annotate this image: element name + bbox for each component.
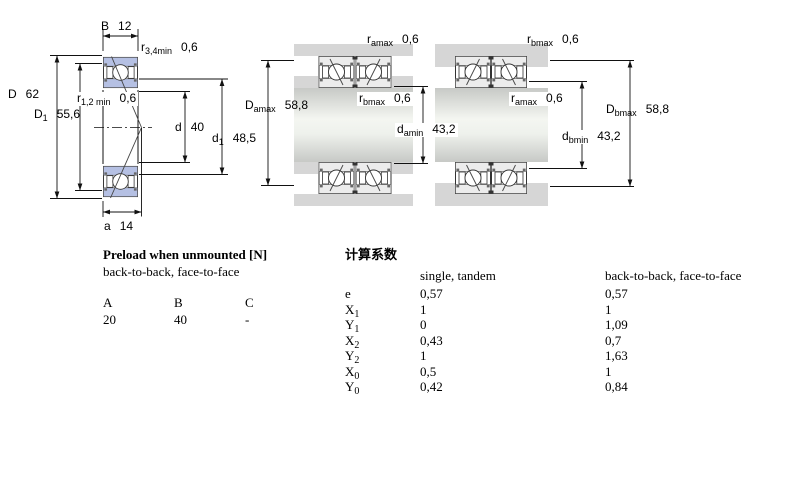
- factor-paired-value: 1,63: [605, 348, 628, 363]
- factors-header-row: single, tandemback-to-back, face-to-face: [345, 268, 785, 283]
- dim-label-B: B12: [101, 20, 131, 34]
- factor-single-value: 1: [420, 348, 605, 363]
- dim-value: 0,6: [402, 32, 419, 46]
- dim-subscript: 1,2 min: [81, 97, 111, 107]
- factor-name: Y: [345, 379, 354, 394]
- factor-subscript: 0: [354, 386, 359, 397]
- factor-single-value: 0,43: [420, 333, 605, 348]
- housing-abutment-diagram: [435, 44, 634, 206]
- dim-value: 43,2: [597, 129, 620, 143]
- factor-subscript: 2: [354, 355, 359, 366]
- factors-col-paired: back-to-back, face-to-face: [605, 268, 741, 283]
- dim-value: 55,6: [57, 107, 80, 121]
- factors-row-Y1: Y101,09: [345, 317, 785, 333]
- dim-value: 0,6: [181, 40, 198, 54]
- dim-label-rbmax: rbmax0,6: [357, 92, 413, 106]
- dimension-Damax: [261, 61, 294, 186]
- factor-paired-value: 1,09: [605, 317, 628, 332]
- factors-title: 计算系数: [345, 247, 785, 262]
- preload-section: Preload when unmounted [N] back-to-back,…: [103, 247, 353, 329]
- dim-subscript: amax: [371, 38, 393, 48]
- dim-subscript: 1: [219, 137, 224, 147]
- dim-name: D: [34, 107, 43, 121]
- factor-paired-value: 1: [605, 364, 612, 379]
- dim-value: 40: [191, 120, 204, 134]
- factor-subscript: 1: [354, 324, 359, 335]
- preload-header-row: ABC: [103, 295, 353, 310]
- dim-value: 43,2: [432, 122, 455, 136]
- dim-name: d: [175, 120, 182, 134]
- dim-label-damin: damin43,2: [395, 123, 458, 137]
- factor-single-value: 1: [420, 302, 605, 317]
- dim-value: 14: [120, 219, 133, 233]
- factor-subscript: 1: [354, 309, 359, 320]
- dim-label-d: d40: [175, 121, 204, 135]
- dim-subscript: amax: [515, 97, 537, 107]
- factor-single-value: 0,42: [420, 379, 605, 394]
- dim-subscript: bmax: [363, 97, 385, 107]
- dim-label-ramax: ramax0,6: [367, 33, 419, 47]
- dim-label-dbmin: dbmin43,2: [560, 130, 623, 144]
- dim-label-D: D62: [8, 88, 39, 102]
- dim-name: D: [8, 87, 17, 101]
- factor-name: X: [345, 333, 354, 348]
- dim-value: 58,8: [285, 98, 308, 112]
- factors-row-Y0: Y00,420,84: [345, 379, 785, 395]
- dim-value: 0,6: [562, 32, 579, 46]
- dim-name: B: [101, 19, 109, 33]
- calculation-factors-section: 计算系数 single, tandemback-to-back, face-to…: [345, 247, 785, 395]
- dim-value: 0,6: [394, 91, 411, 105]
- bearing-datasheet-page: B12 r3,4min0,6 D62 D155,6 r1,2 min0,6 d4…: [0, 0, 800, 500]
- factors-row-Y2: Y211,63: [345, 348, 785, 364]
- dim-value: 48,5: [233, 131, 256, 145]
- factors-row-X2: X20,430,7: [345, 333, 785, 349]
- factor-single-value: 0,5: [420, 364, 605, 379]
- bearing-lower-half: [103, 166, 137, 196]
- dim-name: d: [397, 122, 404, 136]
- dim-name: d: [562, 129, 569, 143]
- dim-subscript: amin: [404, 128, 424, 138]
- preload-val-B: 40: [174, 312, 245, 327]
- dim-value: 0,6: [120, 91, 137, 105]
- preload-val-C: -: [245, 312, 316, 327]
- factor-single-value: 0,57: [420, 286, 605, 301]
- dim-label-Damax: Damax58,8: [245, 99, 308, 113]
- dim-label-rbmax-2: rbmax0,6: [527, 33, 579, 47]
- dim-value: 12: [118, 19, 131, 33]
- dim-value: 58,8: [646, 102, 669, 116]
- dim-label-r12: r1,2 min0,6: [75, 92, 138, 106]
- factors-row-X1: X111: [345, 302, 785, 318]
- factor-paired-value: 0,57: [605, 286, 628, 301]
- dim-label-D1: D155,6: [34, 108, 80, 122]
- factor-paired-value: 0,84: [605, 379, 628, 394]
- preload-col-B: B: [174, 295, 245, 310]
- factor-name: X: [345, 364, 354, 379]
- preload-val-A: 20: [103, 312, 174, 327]
- factor-name: Y: [345, 317, 354, 332]
- factor-name: e: [345, 286, 351, 301]
- factor-name: X: [345, 302, 354, 317]
- dim-subscript: bmax: [531, 38, 553, 48]
- preload-subtitle: back-to-back, face-to-face: [103, 264, 353, 279]
- preload-col-A: A: [103, 295, 174, 310]
- preload-value-row: 2040-: [103, 312, 353, 327]
- dim-name: d: [212, 131, 219, 145]
- dimension-D: [50, 56, 102, 199]
- factors-col-single-tandem: single, tandem: [420, 268, 605, 283]
- dim-name: D: [245, 98, 254, 112]
- factor-paired-value: 0,7: [605, 333, 621, 348]
- factor-subscript: 0: [354, 371, 359, 382]
- preload-col-C: C: [245, 295, 316, 310]
- dim-label-ramax-2: ramax0,6: [509, 92, 565, 106]
- bearing-upper-half: [103, 57, 137, 87]
- dim-name: a: [104, 219, 111, 233]
- factor-subscript: 2: [354, 340, 359, 351]
- dim-value: 62: [26, 87, 39, 101]
- factor-name: Y: [345, 348, 354, 363]
- dim-subscript: 1: [43, 113, 48, 123]
- preload-title: Preload when unmounted [N]: [103, 247, 353, 262]
- dim-label-Dbmax: Dbmax58,8: [606, 103, 669, 117]
- dim-subscript: bmax: [615, 108, 637, 118]
- dim-subscript: bmin: [569, 135, 589, 145]
- dimension-Dbmax: [550, 61, 634, 187]
- factors-row-e: e0,570,57: [345, 286, 785, 302]
- dimension-D1: [75, 64, 102, 191]
- dim-value: 0,6: [546, 91, 563, 105]
- factor-paired-value: 1: [605, 302, 612, 317]
- dim-subscript: amax: [254, 104, 276, 114]
- dim-label-r34: r3,4min0,6: [141, 41, 198, 55]
- factor-single-value: 0: [420, 317, 605, 332]
- factors-row-X0: X00,51: [345, 364, 785, 380]
- dim-name: D: [606, 102, 615, 116]
- dim-label-d1: d148,5: [212, 132, 256, 146]
- dim-label-a: a14: [104, 220, 133, 234]
- dim-subscript: 3,4min: [145, 46, 172, 56]
